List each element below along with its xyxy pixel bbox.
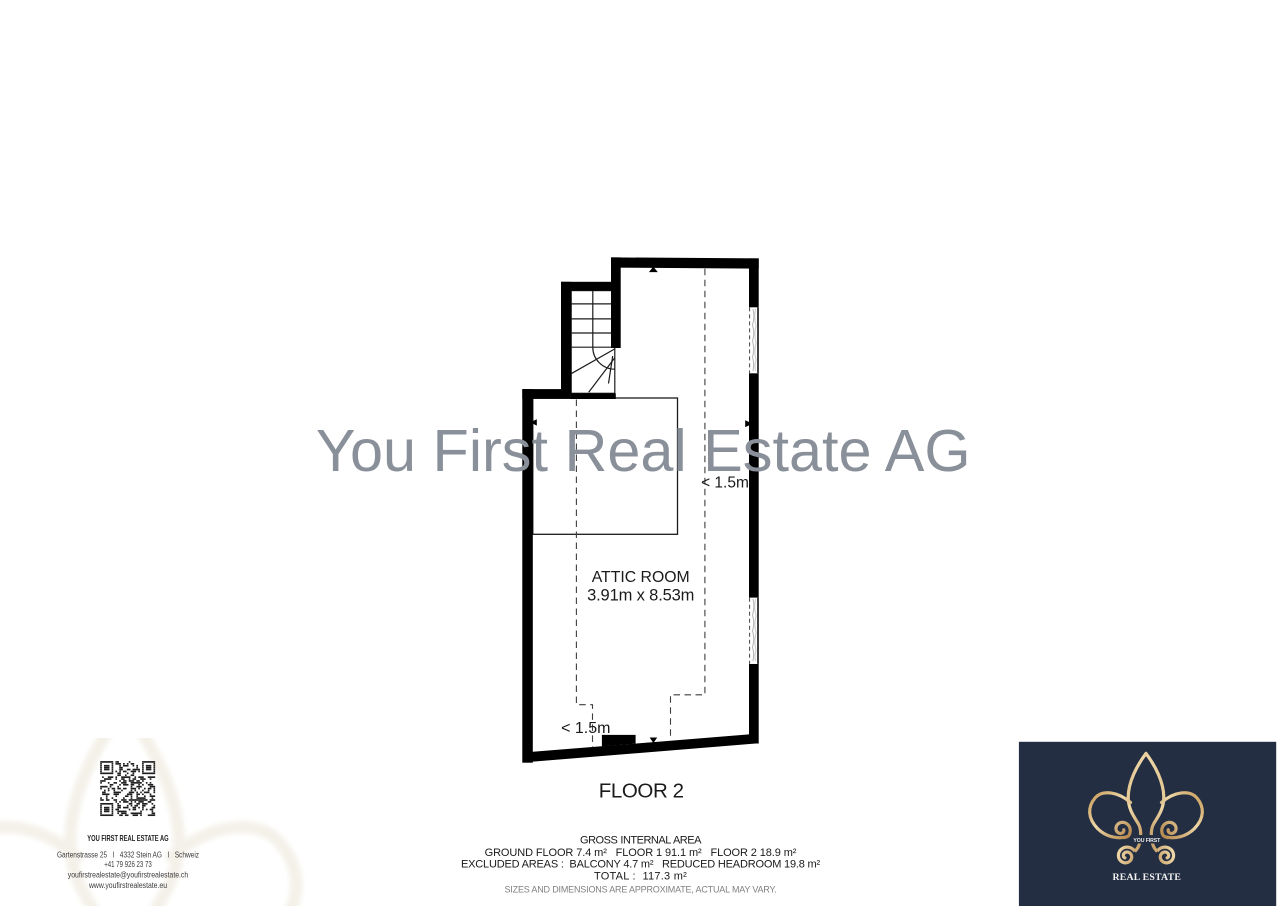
svg-text:3.91m x 8.53m: 3.91m x 8.53m: [587, 586, 694, 604]
svg-text:FLOOR 2: FLOOR 2: [599, 780, 684, 803]
svg-text:EXCLUDED AREAS : BALCONY 4.7: EXCLUDED AREAS : BALCONY 4.7 m² REDUCED …: [461, 859, 821, 871]
svg-text:< 1.5m: < 1.5m: [561, 720, 610, 737]
svg-text:REAL ESTATE: REAL ESTATE: [1113, 872, 1182, 883]
svg-text:Gartenstrasse 25 I 4332 St: Gartenstrasse 25 I 4332 Stein AG I Schwe…: [57, 850, 199, 860]
svg-text:www.youfirstrealestate.eu: www.youfirstrealestate.eu: [88, 881, 167, 891]
svg-text:GROUND FLOOR 7.4 m² FLOOR 1: GROUND FLOOR 7.4 m² FLOOR 1 91.1 m² FLOO…: [485, 847, 797, 859]
svg-text:YOU FIRST: YOU FIRST: [1133, 838, 1161, 844]
svg-text:GROSS INTERNAL AREA: GROSS INTERNAL AREA: [580, 834, 702, 846]
svg-text:< 1.5m: < 1.5m: [701, 475, 749, 492]
svg-text:YOU FIRST REAL ESTATE AG: YOU FIRST REAL ESTATE AG: [87, 835, 168, 843]
svg-text:TOTAL : 117.3 m²: TOTAL : 117.3 m²: [594, 870, 687, 882]
svg-text:ATTIC ROOM: ATTIC ROOM: [592, 569, 690, 586]
svg-text:You First Real Estate AG: You First Real Estate AG: [316, 417, 971, 484]
svg-text:SIZES AND DIMENSIONS ARE APPRO: SIZES AND DIMENSIONS ARE APPROXIMATE, AC…: [504, 885, 776, 895]
svg-text:youfirstrealestate@youfirstrea: youfirstrealestate@youfirstrealestate.ch: [68, 870, 188, 880]
svg-text:+41 79 926 23 73: +41 79 926 23 73: [104, 861, 152, 869]
